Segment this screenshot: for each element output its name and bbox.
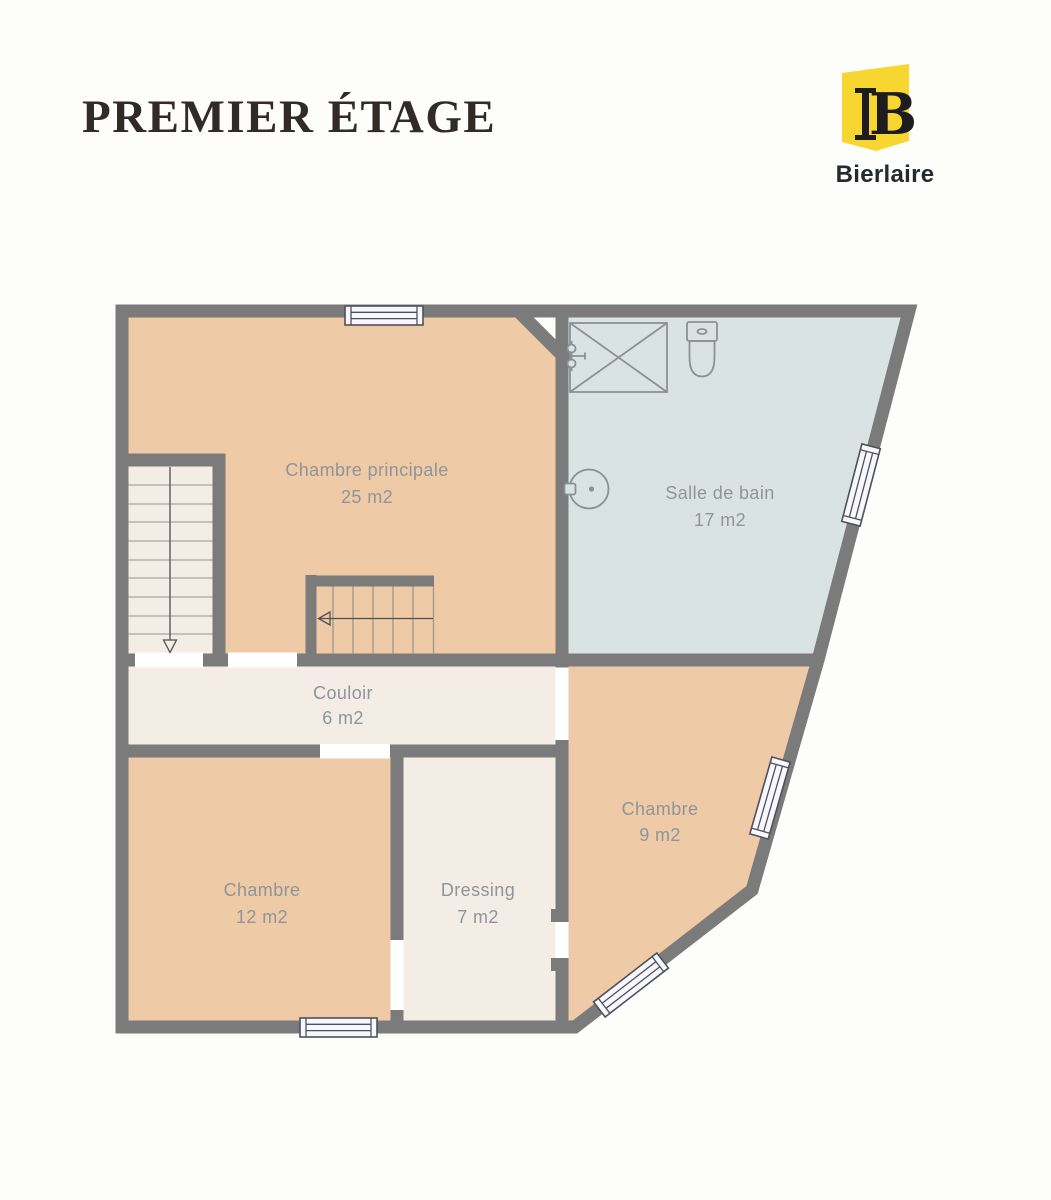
window-south	[300, 1018, 377, 1037]
door-opening-couloir-south	[320, 744, 390, 759]
area-salle-de-bain: 17 m2	[694, 510, 746, 530]
area-chambre-12: 12 m2	[236, 907, 288, 927]
label-chambre-12: Chambre	[224, 880, 301, 900]
area-chambre-9: 9 m2	[639, 825, 681, 845]
door-opening-dressing-west	[391, 940, 404, 1010]
door-jamb	[551, 958, 563, 971]
floor-plan: Chambre principale 25 m2 Salle de bain 1…	[0, 0, 1051, 1200]
label-chambre-principale: Chambre principale	[285, 460, 448, 480]
label-chambre-9: Chambre	[622, 799, 699, 819]
window-north	[345, 306, 423, 325]
area-couloir: 6 m2	[322, 708, 364, 728]
door-opening-chambre-principale	[228, 653, 297, 668]
room-couloir	[122, 660, 562, 751]
area-dressing: 7 m2	[457, 907, 499, 927]
door-opening-chambre-9	[556, 668, 569, 741]
label-dressing: Dressing	[441, 880, 515, 900]
room-chambre-9	[562, 660, 818, 1027]
label-couloir: Couloir	[313, 683, 373, 703]
door-opening-stairwell	[135, 653, 203, 668]
area-chambre-principale: 25 m2	[341, 487, 393, 507]
label-salle-de-bain: Salle de bain	[665, 483, 774, 503]
door-opening-dressing-east	[556, 922, 569, 958]
door-jamb	[551, 909, 563, 922]
